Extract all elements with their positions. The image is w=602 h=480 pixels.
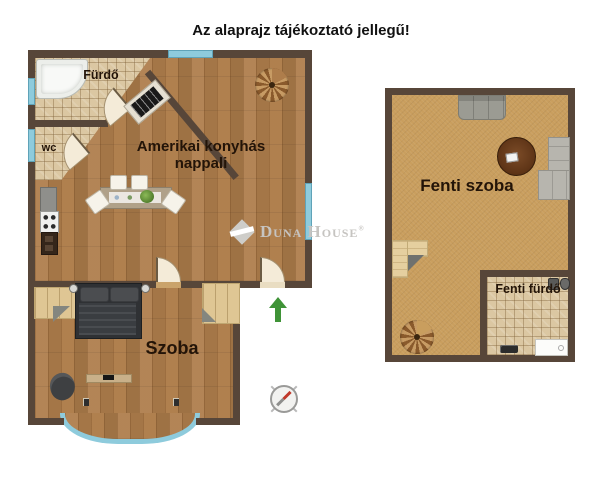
floor-mark [83, 398, 89, 406]
desk-icon [392, 240, 408, 278]
wall-segment [480, 270, 487, 362]
arrow-head [269, 297, 287, 308]
door-threshold [156, 281, 181, 288]
upper-floor-plan: Fenti szoba Fenti fürdő [385, 88, 575, 362]
floor-plan-page: Az alaprajz tájékoztató jellegű! [0, 0, 602, 480]
floor-mark [173, 398, 179, 406]
entrance-arrow-icon [269, 297, 287, 324]
wall-segment [480, 270, 575, 277]
wall-segment [196, 418, 240, 425]
spiral-stairs-post [414, 334, 420, 340]
wall-segment [385, 88, 575, 95]
kitchen-counter-icon [40, 187, 57, 212]
tv-shelf-icon [86, 374, 132, 383]
bedside-lamp-icon [141, 284, 150, 293]
drain [558, 345, 564, 351]
laptop-icon [505, 152, 518, 163]
bed-icon [75, 283, 142, 339]
cabinet-slot [45, 245, 53, 251]
bedside-lamp-icon [69, 284, 78, 293]
wall-segment [385, 88, 392, 362]
room-label-bathroom: Fürdő [71, 69, 131, 83]
plant-icon [140, 190, 154, 203]
spiral-stairs-icon [255, 68, 289, 102]
watermark-word1: Duna [260, 222, 302, 241]
room-label-upper-bathroom: Fenti fürdő [489, 283, 567, 297]
window-marker [168, 50, 213, 58]
chair-icon [110, 175, 127, 190]
pillow [80, 287, 109, 302]
arrow-stem [275, 308, 281, 322]
compass-icon [266, 381, 302, 417]
wall-segment [28, 120, 108, 127]
corner-sofa-icon [538, 170, 570, 200]
tv-icon [103, 375, 114, 380]
room-label-living: Amerikai konyhás nappali [111, 139, 291, 172]
watermark-text: Duna House® [260, 222, 364, 242]
bay-window [60, 413, 200, 444]
chair-icon [131, 175, 148, 190]
room-label-wc: wc [36, 142, 62, 154]
pillow [110, 287, 139, 302]
wall-segment [28, 50, 35, 425]
wall-segment [568, 88, 575, 362]
door-threshold [260, 281, 285, 288]
kitchen-cabinet-icon [41, 232, 58, 255]
round-table-icon [497, 137, 536, 176]
dining-table-icon [100, 187, 172, 209]
sofa-icon [458, 95, 506, 120]
cabinet-slot [45, 236, 53, 242]
page-title: Az alaprajz tájékoztató jellegű! [140, 22, 462, 39]
shower-tray-icon [535, 339, 568, 356]
registered-mark: ® [358, 224, 363, 232]
window-marker [28, 129, 35, 162]
bath-mat-icon [500, 345, 518, 353]
spiral-stairs-icon [400, 320, 434, 354]
watermark-word2: House [308, 222, 359, 241]
window-marker [28, 78, 35, 105]
duna-house-logo-icon [229, 219, 255, 245]
wall-segment [28, 418, 64, 425]
room-label-bedroom: Szoba [129, 339, 215, 359]
room-label-upper-room: Fenti szoba [414, 177, 520, 196]
spiral-stairs-post [269, 82, 275, 88]
wall-segment [305, 50, 312, 288]
stove-icon [40, 211, 59, 233]
duvet [79, 303, 136, 335]
duna-house-watermark: Duna House® [229, 219, 364, 245]
